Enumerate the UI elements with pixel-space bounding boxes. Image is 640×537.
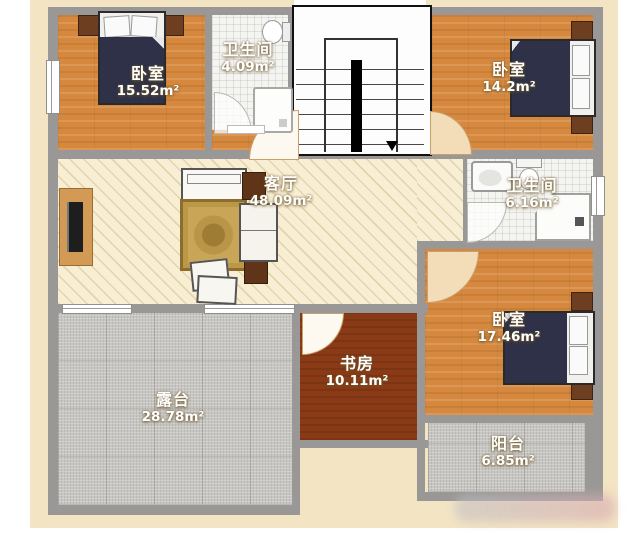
tv xyxy=(67,202,83,252)
pillow xyxy=(130,15,157,38)
room-name: 书房 xyxy=(326,354,389,373)
stair-center-spine xyxy=(351,60,362,152)
nightstand xyxy=(163,15,184,36)
room-label-bathroom-top: 卫生间 4.09m² xyxy=(221,40,274,76)
room-name: 卧室 xyxy=(117,64,180,83)
coffee-table xyxy=(239,203,278,262)
pillow xyxy=(569,346,588,375)
room-label-balcony: 阳台 6.85m² xyxy=(481,434,534,470)
room-area: 10.11m² xyxy=(326,373,389,390)
nightstand xyxy=(571,114,593,134)
pillow xyxy=(103,15,130,38)
room-name: 卧室 xyxy=(482,60,535,79)
room-area: 4.09m² xyxy=(221,59,274,76)
room-label-bedroom-bottom-right: 卧室 17.46m² xyxy=(478,310,541,346)
room-name: 卫生间 xyxy=(505,176,558,195)
wall xyxy=(48,505,300,515)
toilet-tank xyxy=(516,158,542,168)
room-area: 15.52m² xyxy=(117,83,180,100)
window-terrace-left xyxy=(62,304,132,314)
room-area: 6.85m² xyxy=(481,453,534,470)
wall xyxy=(585,423,593,501)
toilet-tank xyxy=(282,22,291,42)
window-bathroom-mid xyxy=(591,176,605,216)
stair-direction-arrow-icon xyxy=(386,141,398,151)
room-label-living-room: 客厅 48.09m² xyxy=(250,174,313,210)
wall xyxy=(417,241,425,304)
room-area: 28.78m² xyxy=(142,409,205,426)
staircase xyxy=(292,5,432,156)
room-area: 6.16m² xyxy=(505,195,558,212)
nightstand xyxy=(78,15,99,36)
room-name: 客厅 xyxy=(250,174,313,193)
room-name: 阳台 xyxy=(481,434,534,453)
drain xyxy=(279,119,287,127)
tv-cabinet xyxy=(59,188,93,266)
pillow xyxy=(569,316,588,345)
wall xyxy=(205,15,212,150)
nightstand xyxy=(571,292,593,311)
sofa-back xyxy=(187,174,241,184)
nightstand xyxy=(571,21,593,41)
room-label-study: 书房 10.11m² xyxy=(326,354,389,390)
room-area: 14.2m² xyxy=(482,79,535,96)
window-left xyxy=(46,60,60,114)
wall xyxy=(292,313,300,513)
watermark-smudge xyxy=(455,494,615,522)
pillow xyxy=(572,78,590,109)
room-name: 露台 xyxy=(142,390,205,409)
room-label-bathroom-mid: 卫生间 6.16m² xyxy=(505,176,558,212)
room-area: 17.46m² xyxy=(478,329,541,346)
wall xyxy=(292,440,428,448)
hallway-floor xyxy=(417,159,463,241)
pillow xyxy=(572,45,590,76)
room-label-bedroom-top-right: 卧室 14.2m² xyxy=(482,60,535,96)
armchair xyxy=(196,275,237,305)
wall xyxy=(417,415,603,423)
room-name: 卧室 xyxy=(478,310,541,329)
wall xyxy=(417,313,425,501)
door-threshold xyxy=(227,125,265,134)
window-terrace-right xyxy=(204,304,295,314)
room-area: 48.09m² xyxy=(250,193,313,210)
wall xyxy=(417,241,603,249)
room-label-terrace: 露台 28.78m² xyxy=(142,390,205,426)
room-label-bedroom-top-left: 卧室 15.52m² xyxy=(117,64,180,100)
floor-plan: 卧室 15.52m² 卫生间 4.09m² 卧室 14.2m² 客厅 48.09… xyxy=(0,0,640,537)
room-name: 卫生间 xyxy=(221,40,274,59)
shower-knob xyxy=(575,217,584,226)
